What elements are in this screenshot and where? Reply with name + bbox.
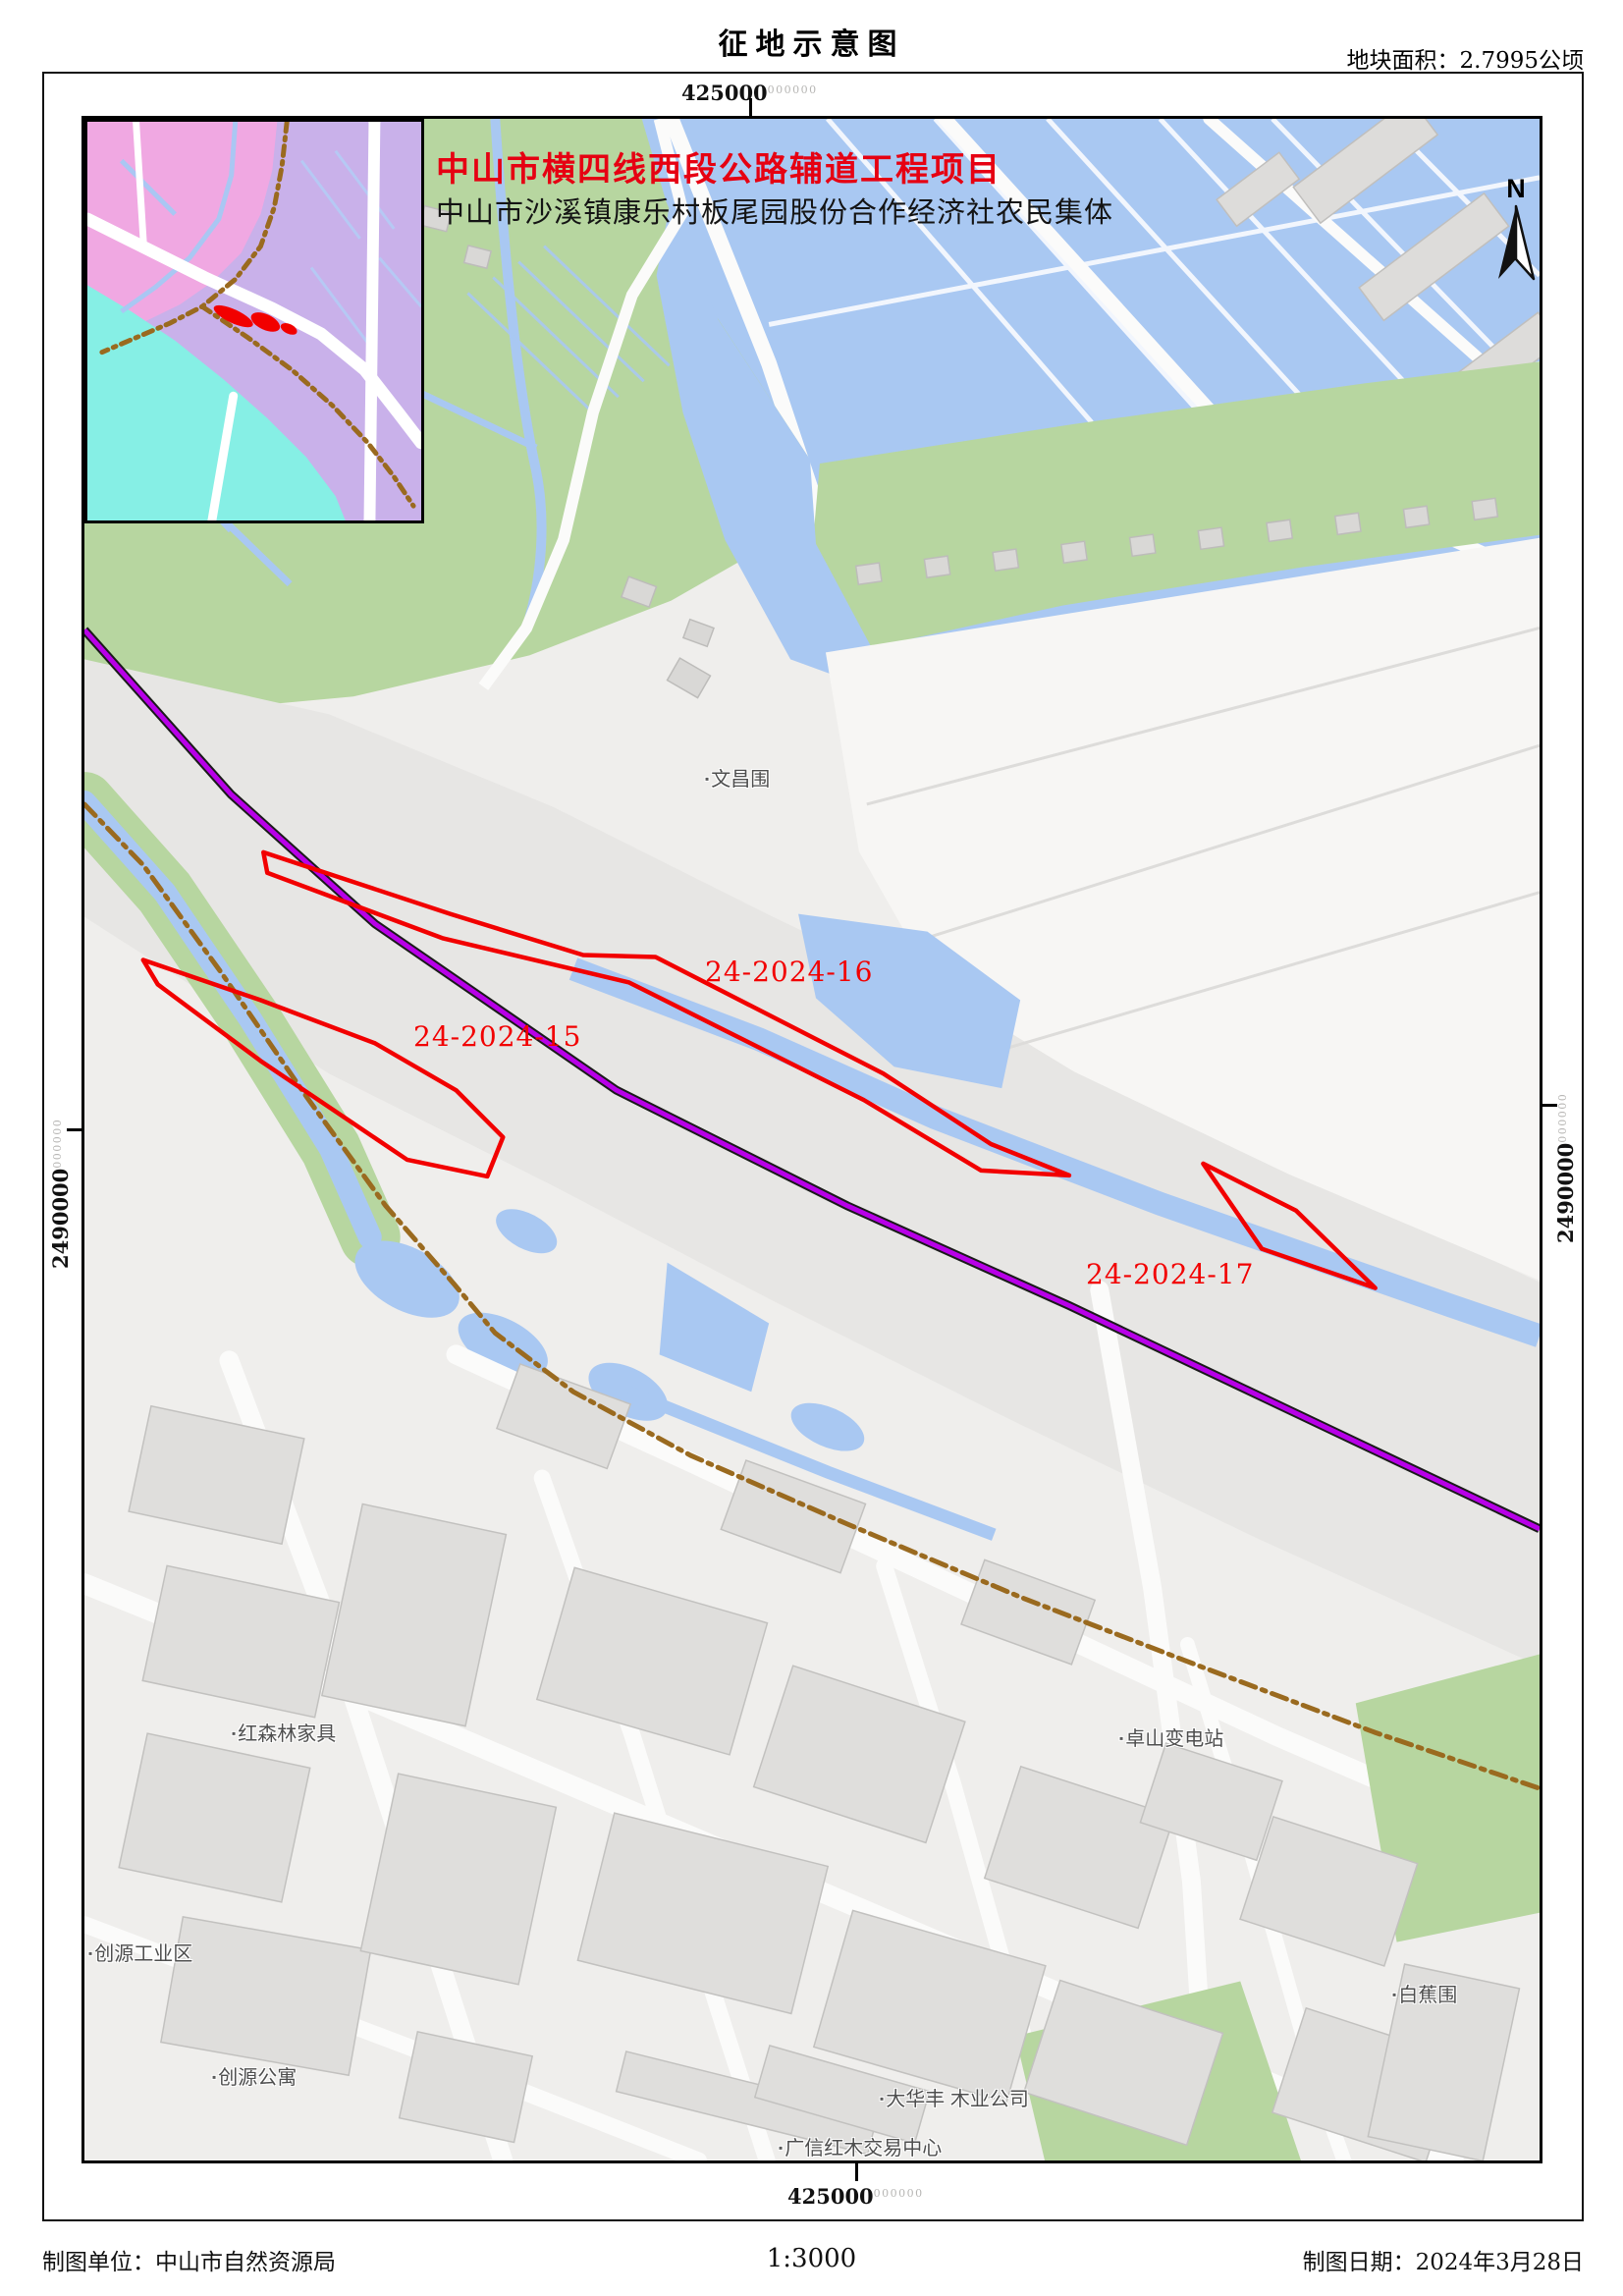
place-label-wenchangwei: ▪文昌围 bbox=[705, 763, 770, 792]
place-label-chuangyuan-apartment: ▪创源公寓 bbox=[212, 2061, 297, 2090]
map-canvas: 中山市横四线西段公路辅道工程项目 中山市沙溪镇康乐村板尾园股份合作经济社农民集体… bbox=[81, 116, 1542, 2163]
place-label-dahuafeng: ▪大华丰 木业公司 bbox=[880, 2083, 1029, 2111]
inset-canvas bbox=[87, 122, 421, 520]
grid-label-bottom: 425000000000 bbox=[787, 2184, 924, 2209]
parcel-label-15: 24-2024-15 bbox=[413, 1020, 581, 1053]
compass-needle-icon bbox=[1494, 204, 1538, 289]
inset-locator-map bbox=[84, 119, 424, 523]
place-label-baijiaowei: ▪白蕉围 bbox=[1392, 1979, 1457, 2007]
grid-label-right: 2490000000000 bbox=[1553, 1093, 1578, 1243]
parcel-label-17: 24-2024-17 bbox=[1086, 1258, 1254, 1290]
place-label-guangxin: ▪广信红木交易中心 bbox=[779, 2132, 942, 2160]
project-title: 中山市横四线西段公路辅道工程项目 bbox=[436, 142, 1001, 191]
poi-marker-icon: ▪ bbox=[705, 772, 709, 786]
place-label-zhuoshan: ▪卓山变电站 bbox=[1119, 1722, 1223, 1751]
poi-marker-icon: ▪ bbox=[88, 1946, 92, 1960]
parcel-label-16: 24-2024-16 bbox=[705, 956, 873, 988]
grid-label-left: 2490000000000 bbox=[48, 1119, 73, 1269]
grid-tick-bottom bbox=[855, 2163, 858, 2181]
parcel-area-label: 地块面积：2.7995公顷 bbox=[1347, 41, 1584, 75]
project-subtitle: 中山市沙溪镇康乐村板尾园股份合作经济社农民集体 bbox=[436, 190, 1113, 231]
north-label: N bbox=[1479, 174, 1542, 204]
place-label-hongsenlin: ▪红森林家具 bbox=[232, 1718, 336, 1746]
poi-marker-icon: ▪ bbox=[1119, 1731, 1123, 1745]
poi-marker-icon: ▪ bbox=[232, 1726, 236, 1740]
place-label-chuangyuan-industrial: ▪创源工业区 bbox=[88, 1938, 192, 1966]
grid-tick-right bbox=[1542, 1104, 1557, 1107]
mapping-date: 制图日期：2024年3月28日 bbox=[1303, 2243, 1584, 2276]
poi-marker-icon: ▪ bbox=[779, 2141, 783, 2155]
grid-tick-left bbox=[67, 1128, 81, 1131]
poi-marker-icon: ▪ bbox=[1392, 1988, 1396, 2001]
poi-marker-icon: ▪ bbox=[880, 2092, 884, 2105]
map-sheet: 征地示意图 地块面积：2.7995公顷 425000000000 4250000… bbox=[0, 0, 1623, 2296]
grid-tick-top bbox=[749, 98, 752, 116]
north-arrow: N bbox=[1479, 174, 1542, 294]
poi-marker-icon: ▪ bbox=[212, 2070, 216, 2084]
